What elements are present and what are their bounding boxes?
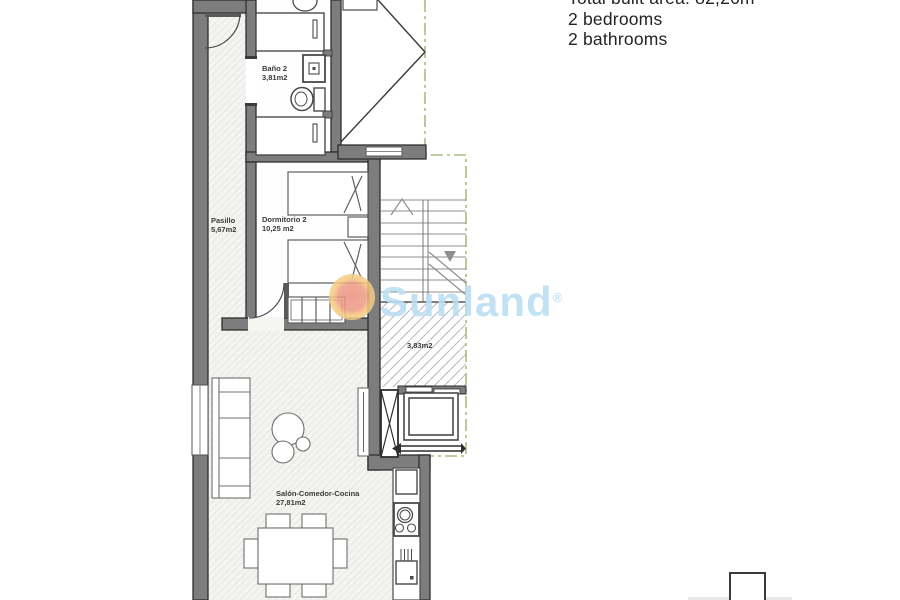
room-label-dormitorio2: Dormitorio 2 10,25 m2 (262, 215, 307, 233)
elevator (381, 386, 466, 457)
bathrooms-count: 2 bathrooms (568, 29, 761, 50)
roof-cross-lines (339, 0, 425, 144)
room-label-salon: Salón-Comedor-Cocina 27,81m2 (276, 489, 359, 507)
bedrooms-count: 2 bedrooms (568, 9, 761, 30)
pocket-door-icon (358, 388, 369, 456)
floor-plan-drawing (0, 0, 900, 600)
floor-plan-page: Baño 2 3,81m2 Pasillo 5,67m2 Dormitorio … (0, 0, 900, 600)
property-info: Total built area: 82,26m² 2 bedrooms 2 b… (568, 0, 761, 50)
room-label-terraza: 3,83m2 (407, 341, 432, 350)
kitchen-fixtures (393, 468, 420, 600)
cutoff-plan-fragment (729, 572, 766, 600)
staircase (380, 199, 466, 302)
room-label-pasillo: Pasillo 5,67m2 (211, 216, 236, 234)
total-built-area: Total built area: 82,26m² (568, 0, 761, 9)
room-label-bano2: Baño 2 3,81m2 (262, 64, 287, 82)
